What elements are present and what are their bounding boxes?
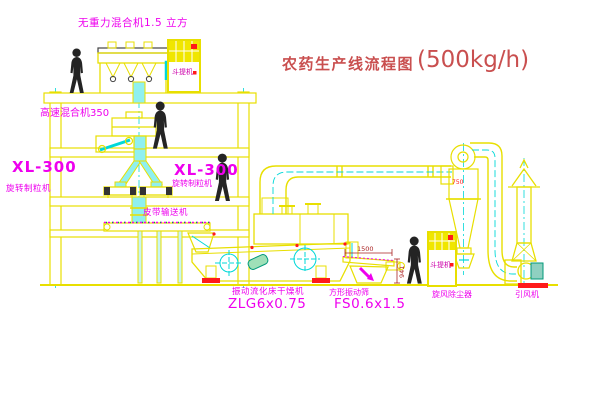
label-belt-conveyor: 皮带输送机 [143, 209, 188, 218]
diagram-title: 农药生产线流程图 (500kg/h) [282, 45, 529, 74]
label-granulator-left-name: 旋转制粒机 [6, 185, 51, 194]
label-dryer-model: ZLG6x0.75 [228, 298, 306, 312]
label-granulator-right-name: 旋转制粒机 [172, 180, 212, 188]
fluid-bed-dryer [188, 198, 350, 283]
label-gravity-mixer: 无重力混合机1.5 立方 [78, 18, 188, 29]
label-fan: 引风机 [515, 291, 539, 299]
dryer-support-right [316, 266, 326, 278]
person-second-floor [153, 102, 168, 149]
vibration-motor [247, 253, 269, 271]
fan-base [518, 283, 548, 288]
title-text: 农药生产线流程图 [282, 45, 414, 74]
label-elevator-1: 斗提机 [172, 69, 193, 76]
person-top-floor [70, 49, 84, 94]
rotary-granulator-right [140, 182, 172, 198]
pesticide-production-line-diagram: 农药生产线流程图 (500kg/h) 无重力混合机1.5 立方 高速混合机350… [0, 0, 600, 403]
rotary-granulator-left [104, 182, 136, 198]
bucket-elevator-1 [168, 40, 200, 92]
fan-motor [531, 263, 543, 279]
title-capacity: (500kg/h) [417, 47, 529, 73]
label-sieve-model: FS0.6x1.5 [334, 298, 406, 312]
label-cyclone-size: 750 [452, 180, 463, 186]
label-elevator-2: 斗提机 [430, 262, 451, 269]
dryer-support-left [206, 266, 216, 278]
label-granulator-right-model: XL-300 [174, 163, 239, 178]
label-granulator-left-model: XL-300 [12, 160, 77, 175]
label-dim-1500: 1500 [357, 246, 374, 253]
label-dim-941: 941 [399, 266, 406, 278]
vibrating-sieve [343, 242, 405, 283]
person-ground [407, 237, 422, 284]
belt-conveyor [104, 223, 210, 284]
label-cyclone: 旋风除尘器 [432, 291, 472, 299]
flow-arrow [360, 268, 374, 281]
bucket-elevator-2 [428, 232, 456, 286]
label-high-speed-mixer: 高速混合机350 [40, 109, 109, 119]
